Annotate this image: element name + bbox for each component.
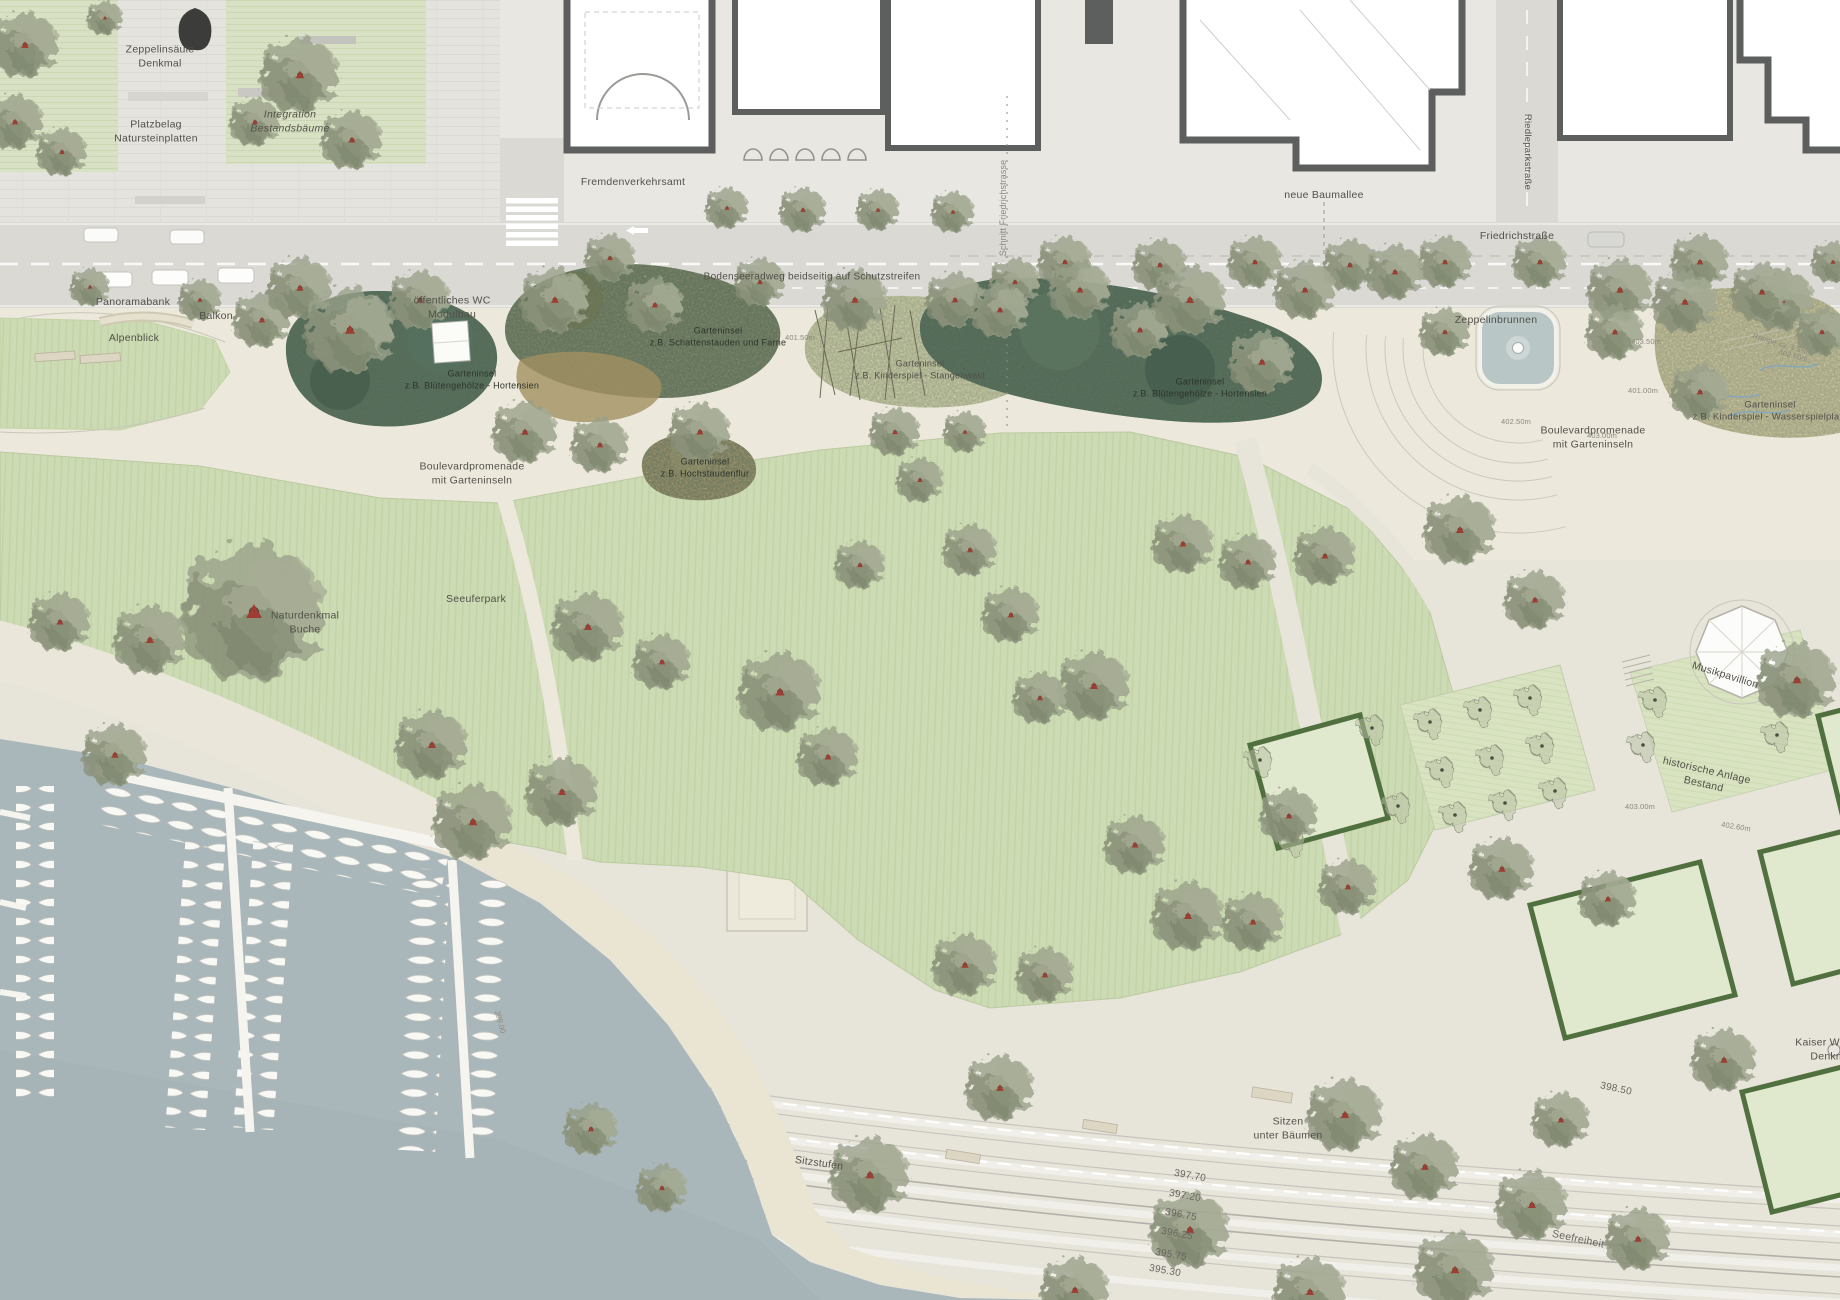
kaiser-monument	[1828, 1044, 1840, 1056]
site-plan: ZeppelinsäuleDenkmal PlatzbelagNaturstei…	[0, 0, 1840, 1300]
site-plan-canvas	[0, 0, 1840, 1300]
